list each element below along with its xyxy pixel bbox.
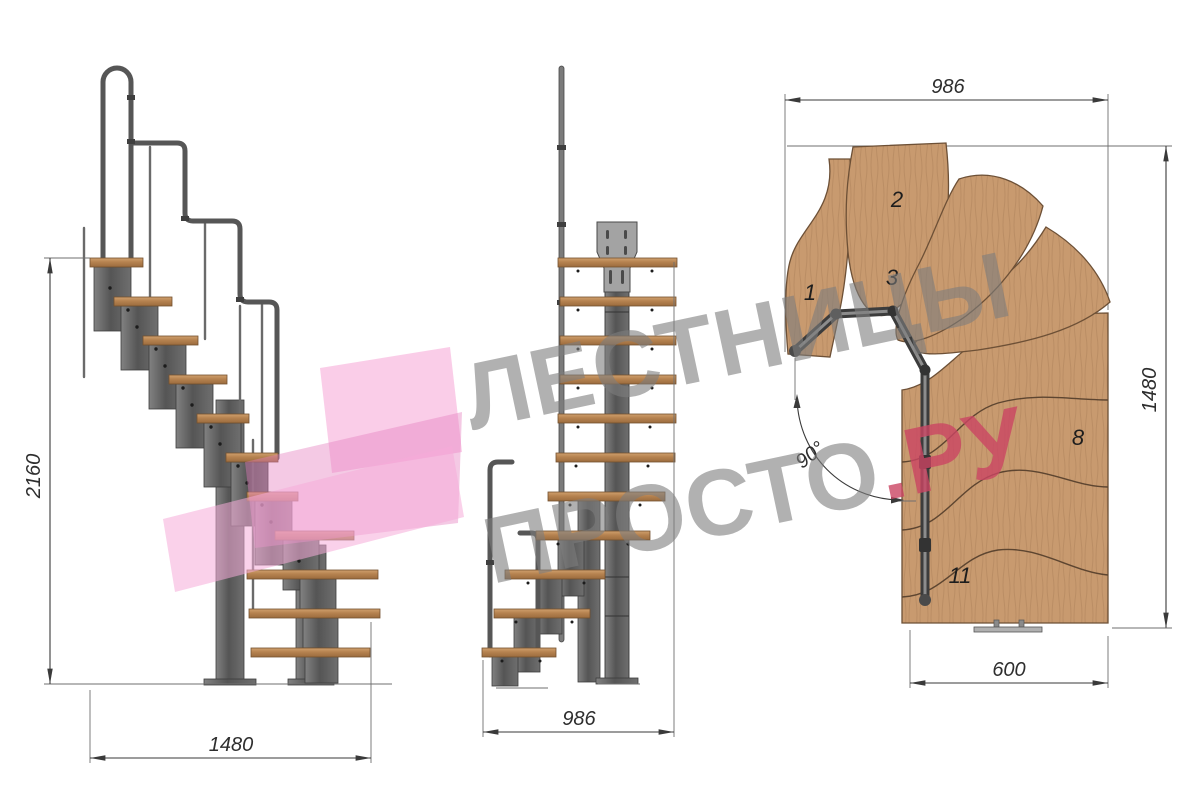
dim-plan-right: 1480	[1139, 368, 1161, 413]
step-label-11: 11	[949, 563, 972, 588]
step-label-8: 8	[1072, 425, 1085, 450]
handrail-loop	[103, 68, 131, 258]
step-label-2: 2	[890, 187, 903, 212]
plan-view: 1 2 3 8 11 986 1480 600 90°	[785, 76, 1172, 688]
mounting-plate	[597, 222, 637, 292]
technical-drawing-page: 2160 1480	[0, 0, 1200, 807]
dim-plan-bottom: 600	[992, 659, 1025, 681]
dim-side-length: 1480	[209, 734, 254, 756]
staircase-drawing: 2160 1480	[0, 0, 1200, 807]
dim-side-height: 2160	[23, 454, 45, 500]
dim-front-width: 986	[562, 708, 596, 730]
plan-wood-treads	[786, 143, 1110, 623]
dim-plan-top: 986	[931, 76, 965, 98]
watermark-line2-main: ПРОСТО	[474, 417, 889, 603]
